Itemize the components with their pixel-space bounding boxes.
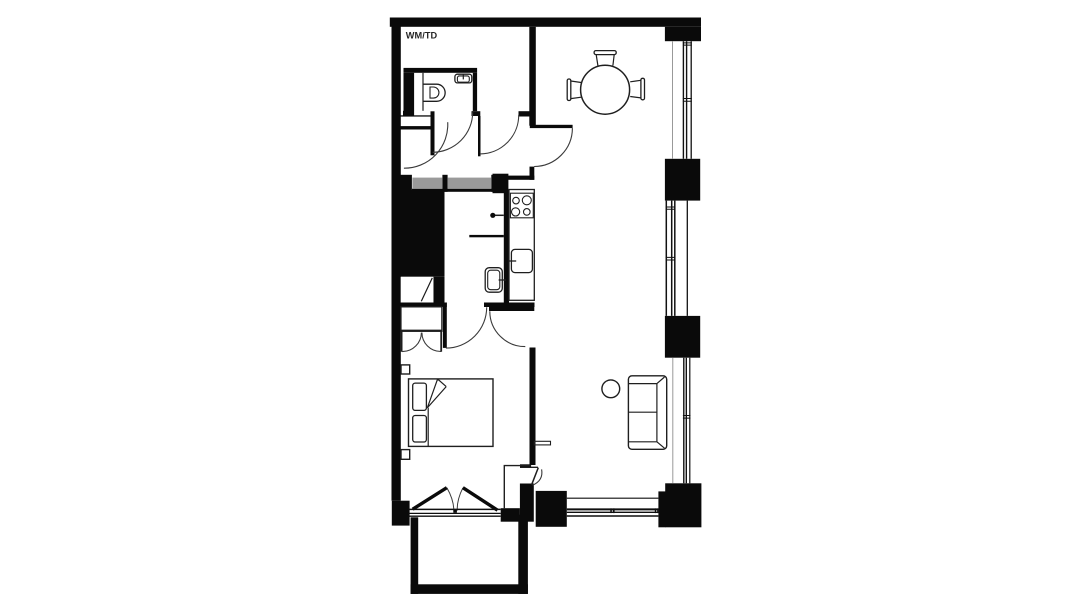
- svg-text:WM/TD: WM/TD: [406, 31, 438, 41]
